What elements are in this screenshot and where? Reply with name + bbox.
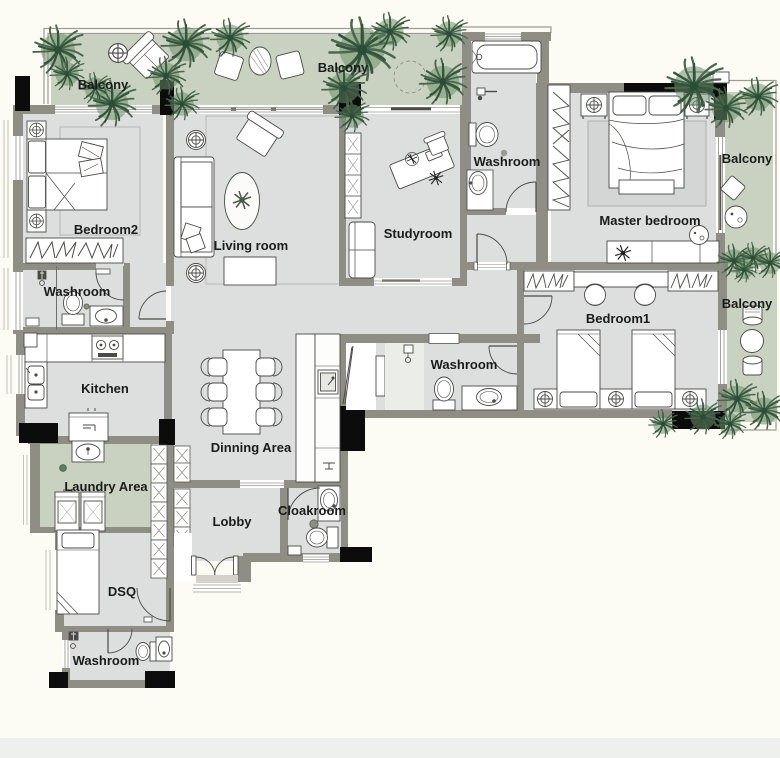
svg-text:Lobby: Lobby (213, 514, 253, 529)
svg-text:Dinning Area: Dinning Area (211, 440, 292, 455)
svg-text:Washroom: Washroom (474, 154, 541, 169)
svg-text:Studyroom: Studyroom (384, 226, 453, 241)
svg-text:Bedroom2: Bedroom2 (74, 222, 138, 237)
svg-text:Bedroom1: Bedroom1 (586, 311, 650, 326)
svg-text:Washroom: Washroom (431, 357, 498, 372)
svg-text:Washroom: Washroom (73, 653, 140, 668)
svg-text:Balcony: Balcony (78, 77, 129, 92)
svg-text:Balcony: Balcony (722, 151, 773, 166)
svg-text:Living room: Living room (214, 238, 288, 253)
svg-text:Kitchen: Kitchen (81, 381, 129, 396)
svg-text:Balcony: Balcony (318, 60, 369, 75)
svg-text:Washroom: Washroom (44, 284, 111, 299)
svg-text:Cloakroom: Cloakroom (278, 503, 346, 518)
svg-text:Balcony: Balcony (722, 296, 773, 311)
svg-text:Laundry Area: Laundry Area (64, 479, 148, 494)
svg-text:Master bedroom: Master bedroom (599, 213, 700, 228)
svg-text:DSQ: DSQ (108, 584, 136, 599)
